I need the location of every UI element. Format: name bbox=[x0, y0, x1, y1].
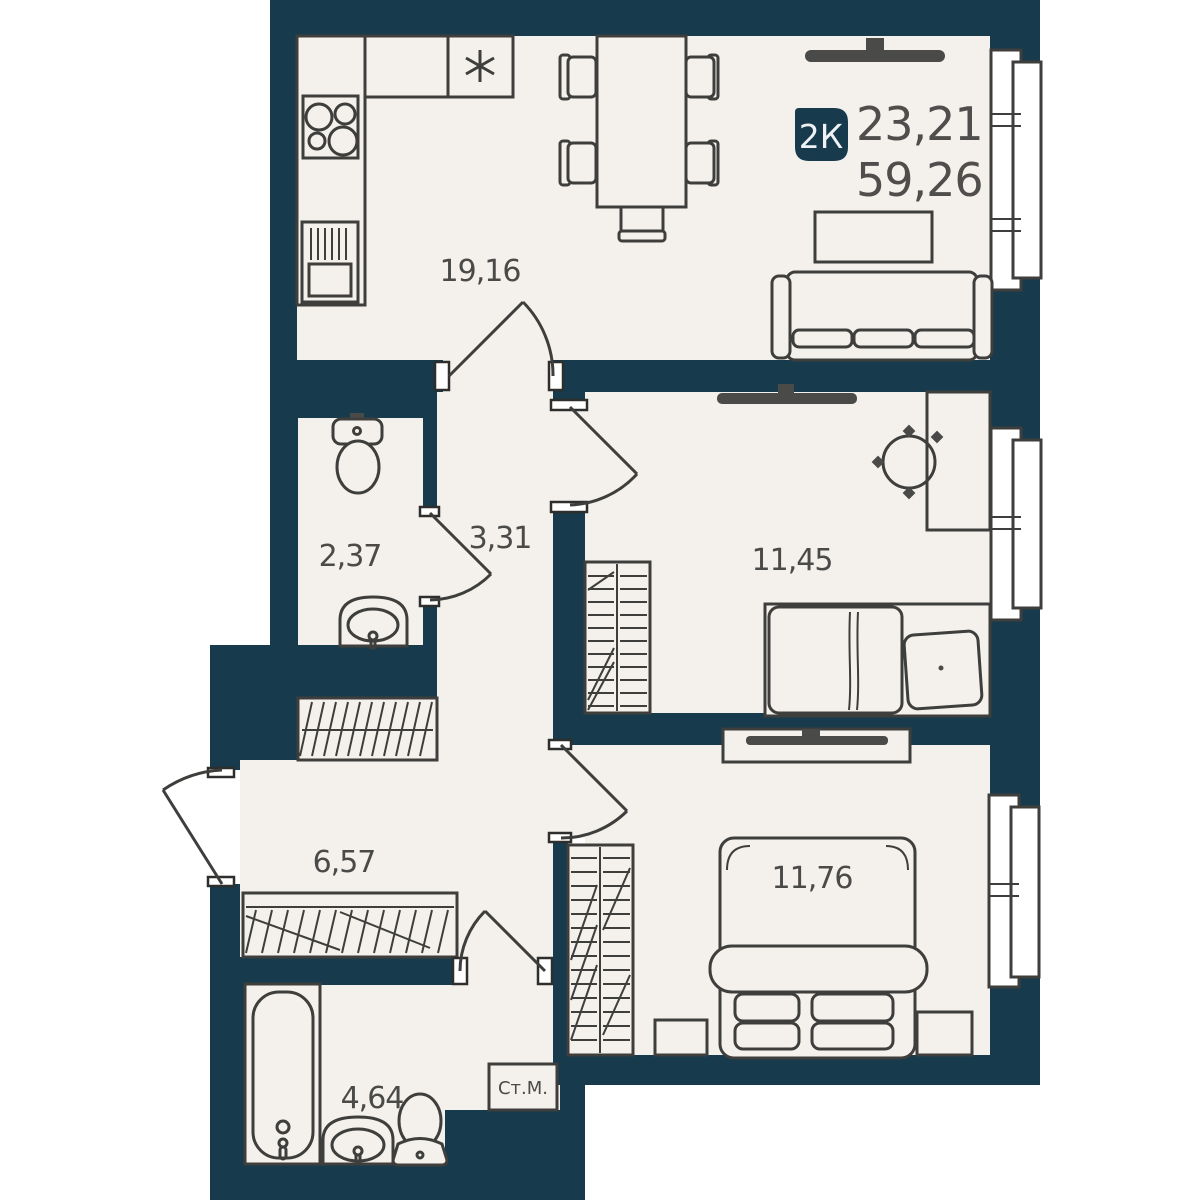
label-kitchen-living-area: 19,16 bbox=[440, 254, 521, 289]
entrance-door bbox=[163, 768, 234, 886]
badge-total-area: 59,26 bbox=[856, 153, 983, 207]
toilet-icon bbox=[333, 413, 382, 493]
wardrobe-bedroom-2-icon bbox=[568, 845, 633, 1055]
washing-machine-label: Ст.М. bbox=[498, 1078, 548, 1099]
nightstand-right-icon bbox=[917, 1012, 972, 1055]
sink-bathroom-icon bbox=[323, 1117, 393, 1164]
window-living-room bbox=[991, 50, 1041, 290]
label-hallway-area: 3,31 bbox=[469, 521, 532, 556]
nightstand-left-icon bbox=[655, 1020, 707, 1055]
sink-toilet-icon bbox=[340, 597, 407, 648]
dining-table-icon bbox=[597, 36, 686, 207]
fridge-icon bbox=[448, 36, 513, 97]
single-bed-icon bbox=[765, 604, 990, 716]
stove-icon bbox=[303, 96, 358, 158]
corridor-wardrobe-icon bbox=[243, 893, 457, 957]
window-bedroom-2 bbox=[989, 795, 1039, 987]
floor-plan: Ст.М. 19,16 3,31 2,37 11,45 6,57 11,76 4… bbox=[0, 0, 1200, 1200]
tv-console-icon bbox=[815, 212, 932, 262]
wardrobe-bedroom-1-icon bbox=[585, 562, 650, 713]
badge-living-area: 23,21 bbox=[856, 97, 983, 151]
label-bedroom-1-area: 11,45 bbox=[752, 543, 833, 578]
label-toilet-area: 2,37 bbox=[319, 539, 382, 574]
washing-machine: Ст.М. bbox=[489, 1064, 557, 1110]
window-bedroom-1 bbox=[991, 428, 1041, 620]
dishwasher-icon bbox=[302, 222, 358, 302]
badge-type: 2К bbox=[799, 117, 843, 156]
bathtub-icon bbox=[245, 984, 320, 1164]
floor-plan-page: Ст.М. 19,16 3,31 2,37 11,45 6,57 11,76 4… bbox=[0, 0, 1200, 1200]
tv-stand-bedroom-2-icon bbox=[723, 729, 910, 762]
label-bedroom-2-area: 11,76 bbox=[772, 861, 853, 896]
sofa-icon bbox=[772, 272, 992, 360]
hall-closet-icon bbox=[298, 698, 437, 760]
label-bathroom-area: 4,64 bbox=[341, 1081, 404, 1116]
label-corridor-area: 6,57 bbox=[313, 845, 376, 880]
